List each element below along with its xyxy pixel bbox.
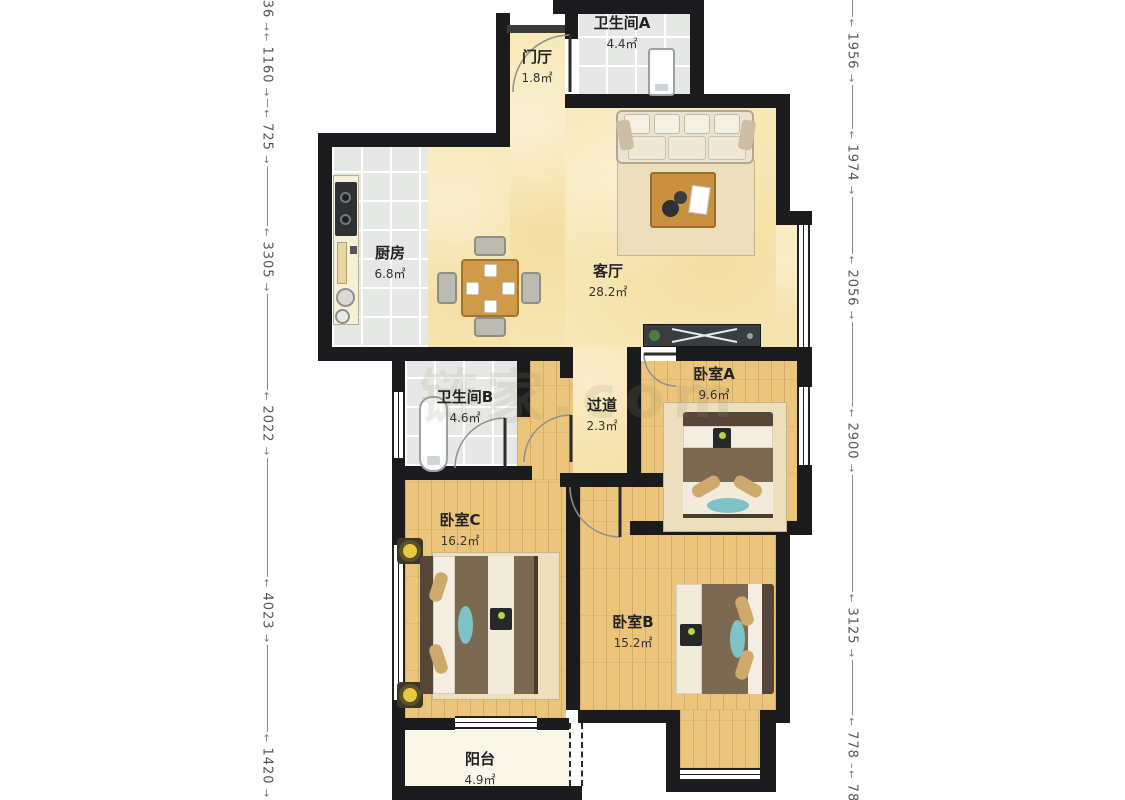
dim-label: 1974 <box>845 129 860 197</box>
pillow-band <box>748 584 762 694</box>
dim-label: 1956 <box>845 17 860 85</box>
stove <box>335 182 357 236</box>
bed-c <box>420 556 538 694</box>
bedroom-b-bay-window <box>680 768 760 781</box>
dim-label: 778 <box>845 716 860 775</box>
bedside-lamp <box>399 684 421 706</box>
tv-knob <box>747 333 753 339</box>
wall-segment <box>578 710 672 723</box>
room-label-kitchen: 厨房 6.8㎡ <box>374 242 405 283</box>
dim-label: 36 <box>260 0 275 34</box>
wall-segment <box>405 718 455 730</box>
dim-label: 1160 <box>260 31 275 99</box>
room-name: 门厅 <box>521 46 552 69</box>
tv-stand <box>643 324 761 347</box>
dim-label: 3125 <box>845 592 860 660</box>
bedroom-c-window <box>392 545 405 700</box>
bedside-lamp <box>399 540 421 562</box>
headboard <box>762 584 774 694</box>
wall-segment <box>318 133 332 361</box>
dining-chair <box>474 317 506 337</box>
wall-segment <box>760 710 776 779</box>
room-name: 卫生间A <box>594 12 651 35</box>
plate <box>502 282 515 295</box>
bedroom-a-window <box>797 387 810 465</box>
room-label-foyer: 门厅 1.8㎡ <box>521 46 552 87</box>
wall-segment <box>690 0 704 108</box>
sofa <box>616 110 754 164</box>
room-name: 厨房 <box>374 242 405 265</box>
room-area: 28.2㎡ <box>589 282 628 300</box>
kitchen-counter <box>333 175 359 325</box>
room-label-living: 客厅 28.2㎡ <box>589 260 628 301</box>
teal-throw <box>458 606 473 644</box>
wall-segment <box>776 521 790 723</box>
room-label-hallway: 过道 2.3㎡ <box>586 394 617 435</box>
room-label-bedroom-c: 卧室C 16.2㎡ <box>439 509 480 550</box>
headboard <box>420 556 433 694</box>
wall-segment <box>776 94 790 225</box>
wall-segment <box>776 211 812 225</box>
living-room-window <box>797 225 810 347</box>
bathroom-b-window <box>392 392 405 458</box>
counter-dial <box>335 309 350 324</box>
dining-chair <box>437 272 457 304</box>
wall-segment <box>496 13 510 147</box>
burner <box>340 214 351 225</box>
room-area: 4.9㎡ <box>464 770 495 788</box>
dim-label: 725 <box>260 108 275 167</box>
room-name: 过道 <box>586 394 617 417</box>
room-area: 6.8㎡ <box>374 264 405 282</box>
dining-table <box>461 259 519 317</box>
living-bay-floor <box>776 225 797 347</box>
wall-segment <box>318 133 510 147</box>
room-name: 客厅 <box>589 260 628 283</box>
dim-label: 78 <box>845 768 860 800</box>
tray-dot <box>498 612 505 619</box>
wall-segment <box>797 347 812 387</box>
wall-segment <box>797 465 812 521</box>
room-label-bedroom-b: 卧室B 15.2㎡ <box>612 611 653 652</box>
room-name: 卫生间B <box>437 386 493 409</box>
room-area: 16.2㎡ <box>439 531 480 549</box>
table-book <box>688 185 711 215</box>
dim-label: 2900 <box>845 407 860 475</box>
teal-throw <box>730 620 745 658</box>
room-label-bedroom-a: 卧室A 9.6㎡ <box>693 363 735 404</box>
dining-chair <box>521 272 541 304</box>
tray-dot <box>688 628 695 635</box>
plate <box>484 300 497 313</box>
sofa-seat <box>628 136 666 160</box>
wall-segment <box>666 710 680 782</box>
bedroom-b-bay-floor <box>680 710 760 768</box>
dimension-line-right <box>852 0 853 800</box>
coffee-table <box>650 172 716 228</box>
wall-segment <box>392 700 405 800</box>
room-label-balcony: 阳台 4.9㎡ <box>464 748 495 789</box>
sofa-pillow <box>738 119 757 151</box>
sofa-cushion <box>714 114 740 134</box>
sofa-cushion <box>684 114 710 134</box>
heater-panel <box>427 456 440 465</box>
blanket <box>683 448 773 482</box>
burner <box>340 192 351 203</box>
utensil-tray <box>337 242 347 284</box>
balcony-window <box>455 716 537 729</box>
balcony-dashed-line <box>581 723 583 786</box>
sofa-seat <box>668 136 706 160</box>
wall-segment <box>565 94 790 108</box>
floor-plan: 卫生间A 4.4㎡ 门厅 1.8㎡ 厨房 6.8㎡ 客厅 28.2㎡ 卫生间B … <box>0 0 1125 800</box>
dim-label: 2022 <box>260 390 275 458</box>
wall-segment <box>507 25 565 33</box>
counter-item <box>350 246 357 254</box>
bed-tray <box>680 624 702 646</box>
washer-panel <box>655 84 668 91</box>
room-name: 卧室A <box>693 363 735 386</box>
wall-segment <box>565 13 578 39</box>
bed-b <box>676 584 774 694</box>
wall-segment <box>566 480 580 710</box>
plate <box>484 264 497 277</box>
room-name: 阳台 <box>464 748 495 771</box>
room-area: 9.6㎡ <box>693 385 735 403</box>
dim-label: 3305 <box>260 226 275 294</box>
sink <box>336 288 355 307</box>
balcony-dashed-line <box>569 723 571 786</box>
footboard <box>534 556 538 694</box>
table-decor <box>674 191 687 204</box>
room-area: 1.8㎡ <box>521 68 552 86</box>
dim-label: 4023 <box>260 577 275 645</box>
washing-machine <box>648 48 675 96</box>
teal-throw <box>707 498 749 513</box>
room-area: 4.6㎡ <box>437 408 493 426</box>
sofa-cushion <box>654 114 680 134</box>
wall-segment <box>537 718 569 730</box>
room-area: 4.4㎡ <box>594 34 651 52</box>
room-label-bathroom-b: 卫生间B 4.6㎡ <box>437 386 493 427</box>
room-area: 2.3㎡ <box>586 416 617 434</box>
footboard <box>683 514 773 518</box>
dim-label: 1420 <box>260 732 275 800</box>
room-name: 卧室C <box>439 509 480 532</box>
plant-icon <box>649 330 660 341</box>
dining-chair <box>474 236 506 256</box>
dim-label: 2056 <box>845 254 860 322</box>
room-name: 卧室B <box>612 611 653 634</box>
wall-segment <box>392 466 532 480</box>
plate <box>466 282 479 295</box>
wall-segment <box>392 361 405 392</box>
room-area: 15.2㎡ <box>612 633 653 651</box>
bed-tray <box>490 608 512 630</box>
room-label-bathroom-a: 卫生间A 4.4㎡ <box>594 12 651 53</box>
